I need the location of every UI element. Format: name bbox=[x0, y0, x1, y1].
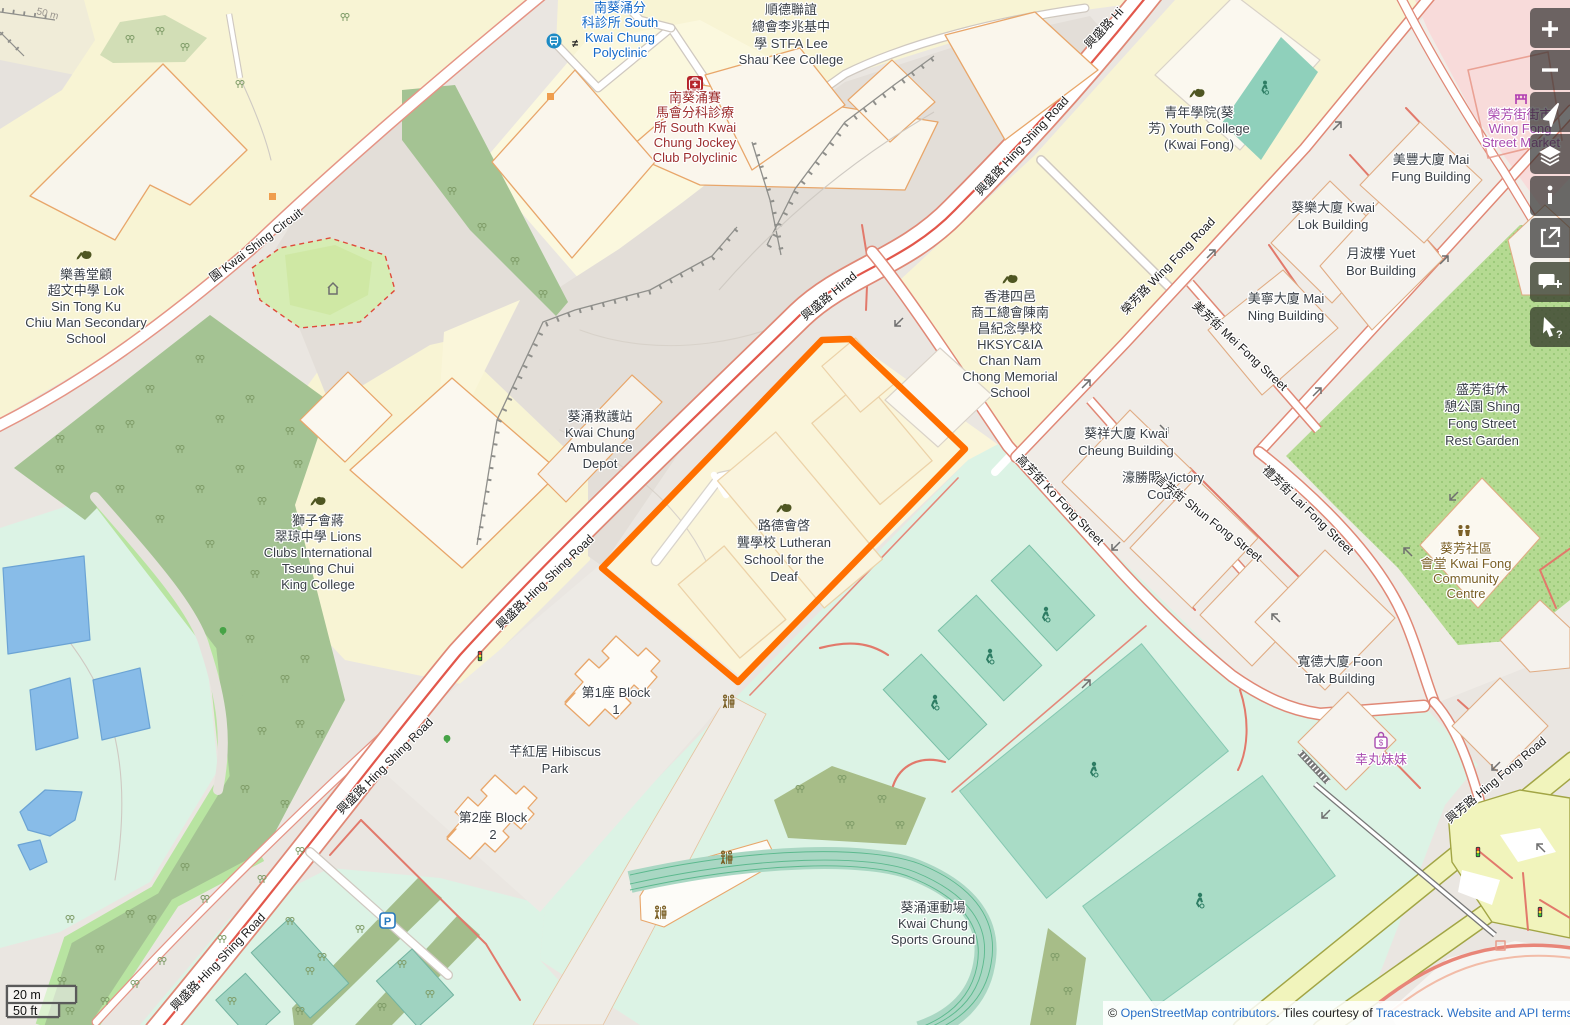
svg-text:Shau Kee College: Shau Kee College bbox=[739, 52, 844, 67]
svg-text:© OpenStreetMap contributors.: © OpenStreetMap contributors. Tiles cour… bbox=[1108, 1006, 1570, 1020]
svg-text:?: ? bbox=[1556, 329, 1563, 341]
svg-text:50 ft: 50 ft bbox=[13, 1004, 38, 1018]
svg-text:Tseung Chui: Tseung Chui bbox=[282, 561, 354, 576]
svg-text:芊紅居 Hibiscus: 芊紅居 Hibiscus bbox=[509, 744, 601, 759]
svg-text:聾學校 Lutheran: 聾學校 Lutheran bbox=[737, 535, 831, 550]
svg-text:Rest Garden: Rest Garden bbox=[1445, 433, 1519, 448]
svg-text:Deaf: Deaf bbox=[770, 569, 798, 584]
svg-text:Sports Ground: Sports Ground bbox=[891, 932, 976, 947]
svg-text:月波樓 Yuet: 月波樓 Yuet bbox=[1347, 246, 1416, 261]
svg-text:Club Polyclinic: Club Polyclinic bbox=[653, 150, 738, 165]
svg-text:Centre: Centre bbox=[1446, 586, 1485, 601]
svg-text:總會李兆基中: 總會李兆基中 bbox=[752, 19, 830, 34]
svg-text:1: 1 bbox=[612, 702, 619, 717]
svg-text:香港四邑: 香港四邑 bbox=[984, 289, 1036, 304]
svg-text:Depot: Depot bbox=[583, 456, 618, 471]
svg-text:芳) Youth College: 芳) Youth College bbox=[1148, 121, 1249, 136]
svg-text:20 m: 20 m bbox=[13, 988, 41, 1002]
svg-text:南葵涌分: 南葵涌分 bbox=[594, 0, 646, 15]
svg-text:昌紀念學校: 昌紀念學校 bbox=[977, 321, 1042, 336]
svg-text:School: School bbox=[66, 331, 106, 346]
svg-text:葵芳社區: 葵芳社區 bbox=[1440, 541, 1492, 556]
svg-text:King College: King College bbox=[281, 577, 355, 592]
svg-text:Chung Jockey: Chung Jockey bbox=[654, 135, 737, 150]
svg-text:盛芳街休: 盛芳街休 bbox=[1456, 382, 1508, 397]
svg-text:路德會啓: 路德會啓 bbox=[758, 518, 810, 533]
svg-text:美寧大廈 Mai: 美寧大廈 Mai bbox=[1248, 291, 1325, 306]
svg-text:學 STFA Lee: 學 STFA Lee bbox=[754, 36, 828, 51]
svg-text:第1座 Block: 第1座 Block bbox=[582, 685, 651, 700]
svg-text:Park: Park bbox=[542, 761, 569, 776]
svg-text:葵涌運動場: 葵涌運動場 bbox=[900, 900, 965, 915]
svg-text:Fung Building: Fung Building bbox=[1391, 169, 1471, 184]
svg-text:順德聯誼: 順德聯誼 bbox=[765, 2, 817, 17]
svg-text:P: P bbox=[384, 916, 391, 928]
svg-text:會堂 Kwai Fong: 會堂 Kwai Fong bbox=[1420, 556, 1511, 571]
svg-text:翠琼中學 Lions: 翠琼中學 Lions bbox=[275, 529, 362, 544]
svg-text:(Kwai Fong): (Kwai Fong) bbox=[1164, 137, 1234, 152]
svg-text:葵祥大廈 Kwai: 葵祥大廈 Kwai bbox=[1084, 426, 1168, 441]
svg-text:Kwai Chung: Kwai Chung bbox=[565, 425, 635, 440]
svg-text:寬德大廈 Foon: 寬德大廈 Foon bbox=[1297, 654, 1382, 669]
svg-text:Community: Community bbox=[1433, 571, 1499, 586]
svg-text:第2座 Block: 第2座 Block bbox=[459, 810, 528, 825]
svg-text:Bor Building: Bor Building bbox=[1346, 263, 1416, 278]
svg-text:葵樂大廈 Kwai: 葵樂大廈 Kwai bbox=[1291, 200, 1375, 215]
svg-text:Polyclinic: Polyclinic bbox=[593, 45, 648, 60]
svg-text:南葵涌賽: 南葵涌賽 bbox=[669, 90, 721, 105]
svg-text:Kwai Chung: Kwai Chung bbox=[898, 916, 968, 931]
svg-text:Chong Memorial: Chong Memorial bbox=[962, 369, 1057, 384]
svg-text:憩公園 Shing: 憩公園 Shing bbox=[1444, 399, 1520, 414]
svg-text:超文中學 Lok: 超文中學 Lok bbox=[48, 283, 125, 298]
svg-text:Chan Nam: Chan Nam bbox=[979, 353, 1041, 368]
svg-text:School: School bbox=[990, 385, 1030, 400]
svg-text:幸丸妹妹: 幸丸妹妹 bbox=[1355, 752, 1407, 767]
svg-text:Fong Street: Fong Street bbox=[1448, 416, 1516, 431]
svg-text:HKSYC&IA: HKSYC&IA bbox=[977, 337, 1043, 352]
svg-text:美豐大廈 Mai: 美豐大廈 Mai bbox=[1393, 152, 1470, 167]
svg-text:Cheung Building: Cheung Building bbox=[1078, 443, 1173, 458]
svg-text:School for the: School for the bbox=[744, 552, 824, 567]
svg-text:Ning Building: Ning Building bbox=[1248, 308, 1325, 323]
svg-text:≠: ≠ bbox=[572, 38, 578, 50]
svg-text:馬會分科診療: 馬會分科診療 bbox=[656, 105, 734, 120]
svg-text:Kwai Chung: Kwai Chung bbox=[585, 30, 655, 45]
svg-text:獅子會蔣: 獅子會蔣 bbox=[292, 513, 344, 528]
svg-text:2: 2 bbox=[489, 827, 496, 842]
svg-text:Tak Building: Tak Building bbox=[1305, 671, 1375, 686]
svg-text:Sin Tong Ku: Sin Tong Ku bbox=[51, 299, 121, 314]
svg-text:所 South Kwai: 所 South Kwai bbox=[654, 120, 736, 135]
svg-text:Ambulance: Ambulance bbox=[567, 440, 632, 455]
svg-text:樂善堂顧: 樂善堂顧 bbox=[60, 267, 112, 282]
svg-text:Lok Building: Lok Building bbox=[1298, 217, 1369, 232]
svg-text:商工總會陳南: 商工總會陳南 bbox=[971, 305, 1049, 320]
svg-text:科診所 South: 科診所 South bbox=[582, 15, 659, 30]
svg-text:葵涌救護站: 葵涌救護站 bbox=[567, 409, 632, 424]
svg-text:Chiu Man Secondary: Chiu Man Secondary bbox=[25, 315, 147, 330]
svg-text:$: $ bbox=[1379, 739, 1384, 748]
svg-text:Clubs International: Clubs International bbox=[264, 545, 373, 560]
svg-text:青年學院(葵: 青年學院(葵 bbox=[1164, 105, 1233, 120]
